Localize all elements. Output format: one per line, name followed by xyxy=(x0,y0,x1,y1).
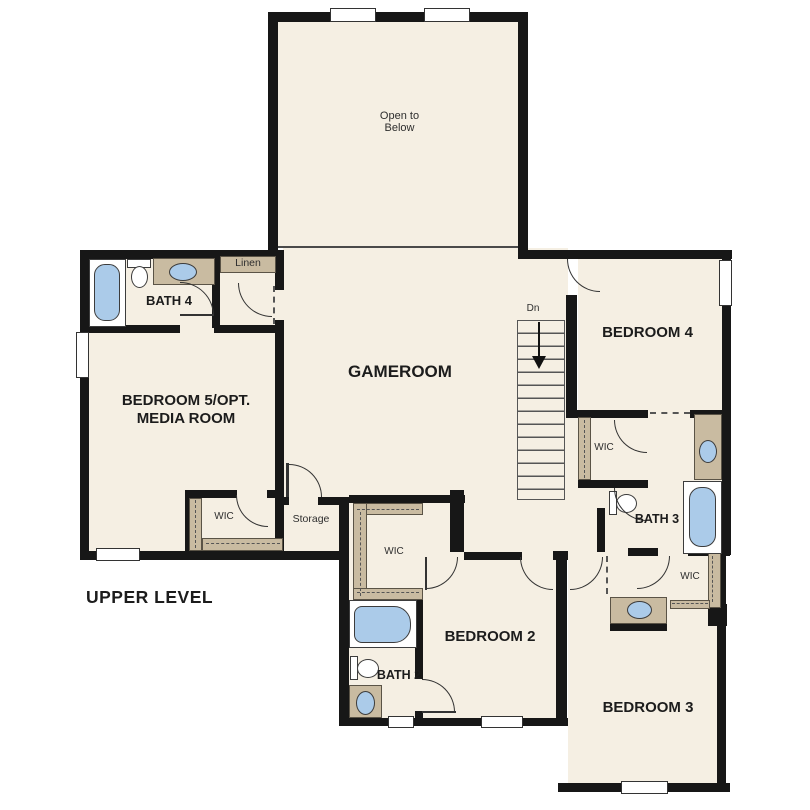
wic-shelf xyxy=(353,588,423,600)
sink xyxy=(356,691,375,715)
label-bath3: BATH 3 xyxy=(630,512,684,527)
label-bedroom5: BEDROOM 5/OPT. MEDIA ROOM xyxy=(101,392,271,427)
door-leaf xyxy=(180,314,214,316)
window xyxy=(719,260,732,306)
door-arc xyxy=(567,259,600,292)
wall xyxy=(275,320,284,497)
staircase xyxy=(517,320,565,500)
wall xyxy=(450,490,464,552)
label-bath2: BATH 2 xyxy=(374,668,424,683)
window xyxy=(388,716,414,728)
wall xyxy=(556,560,567,726)
wall xyxy=(340,718,568,726)
shelf-line xyxy=(206,543,280,544)
floor-plan: Open to Below GAMEROOM BEDROOM 5/OPT. ME… xyxy=(0,0,810,810)
door-leaf xyxy=(422,711,456,713)
label-gameroom: GAMEROOM xyxy=(330,362,470,382)
wall xyxy=(518,250,732,259)
sink xyxy=(699,440,717,463)
label-bedroom2: BEDROOM 2 xyxy=(435,628,545,646)
label-stairs-dn: Dn xyxy=(521,303,545,314)
sink xyxy=(169,263,197,281)
wall xyxy=(268,12,278,252)
cased-opening xyxy=(273,286,275,324)
page-title: UPPER LEVEL xyxy=(86,587,282,608)
wall xyxy=(628,548,658,556)
label-linen: Linen xyxy=(222,258,274,270)
label-open-to-below: Open to Below xyxy=(372,110,427,134)
wall xyxy=(553,551,568,560)
wall xyxy=(610,623,667,631)
toilet-bowl xyxy=(131,266,148,288)
sink xyxy=(627,601,652,619)
shelf-line xyxy=(672,603,708,604)
shelf-line xyxy=(357,509,419,510)
label-wic-bedroom2: WIC xyxy=(376,546,412,557)
wall xyxy=(349,495,465,503)
shelf-line xyxy=(712,556,713,602)
window xyxy=(76,332,89,378)
cased-opening xyxy=(606,556,608,594)
wall xyxy=(464,552,522,560)
window xyxy=(96,548,140,561)
wall xyxy=(80,250,89,560)
cased-opening xyxy=(650,412,690,414)
wall xyxy=(518,12,528,252)
open-to-below-edge xyxy=(278,246,518,248)
label-bedroom4: BEDROOM 4 xyxy=(575,324,720,342)
label-storage: Storage xyxy=(284,514,338,526)
wall xyxy=(275,497,289,505)
open-to-below-floor xyxy=(278,22,518,248)
window xyxy=(330,8,376,22)
window xyxy=(481,716,523,728)
door-leaf xyxy=(425,557,427,590)
bathtub xyxy=(354,606,411,643)
wall xyxy=(214,325,276,333)
stairs-arrow xyxy=(538,322,540,358)
label-bedroom3: BEDROOM 3 xyxy=(583,699,713,717)
shelf-line xyxy=(357,592,419,593)
shelf-line xyxy=(584,420,585,478)
label-wic-bedroom4: WIC xyxy=(586,442,622,453)
wall xyxy=(275,250,284,290)
wic-shelf xyxy=(202,538,283,551)
wall xyxy=(275,551,346,560)
shelf-line xyxy=(360,512,361,596)
wall xyxy=(597,508,605,552)
wall xyxy=(566,295,577,412)
wall xyxy=(268,12,528,22)
bathtub xyxy=(94,264,120,321)
shelf-line xyxy=(195,500,196,548)
wall xyxy=(578,480,648,488)
label-wic-bedroom3: WIC xyxy=(672,571,708,582)
wall xyxy=(339,497,349,726)
bathtub xyxy=(689,487,716,547)
label-wic-bedroom5: WIC xyxy=(206,511,242,522)
label-bath4: BATH 4 xyxy=(140,293,198,308)
wic-shelf xyxy=(670,600,710,609)
door-leaf xyxy=(286,463,289,497)
window xyxy=(424,8,470,22)
window xyxy=(621,781,668,794)
stairs-arrowhead-icon xyxy=(532,356,546,376)
